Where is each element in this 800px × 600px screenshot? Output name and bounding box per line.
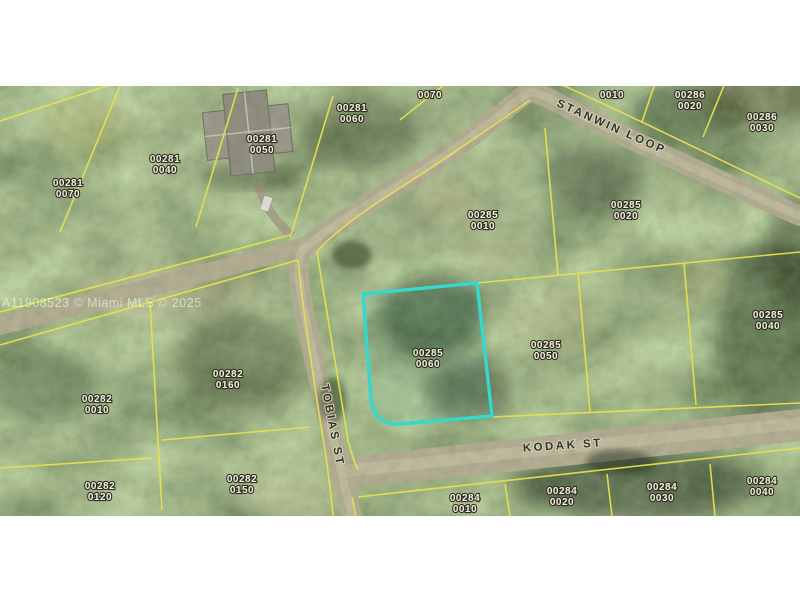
parcel-label: 002840010 [450, 493, 480, 515]
parcel-label: 002850040 [753, 310, 783, 332]
parcel-label: 002860030 [747, 112, 777, 134]
parcel-label: 002820120 [85, 481, 115, 503]
parcel-label: 002840030 [647, 482, 677, 504]
parcel-label: 0010 [600, 90, 624, 101]
parcel-label: 002810060 [337, 103, 367, 125]
parcel-label: 002850020 [611, 200, 641, 222]
mls-watermark: A11908523 © Miami MLS © 2025 [2, 296, 202, 310]
parcel-label: 002860020 [675, 90, 705, 112]
parcel-label-highlighted: 002850060 [413, 348, 443, 370]
parcel-label: 002850050 [531, 340, 561, 362]
parcel-label: 002840040 [747, 476, 777, 498]
parcel-label: 002850010 [468, 210, 498, 232]
parcel-label: 002810070 [53, 178, 83, 200]
parcel-label: 002810050 [247, 134, 277, 156]
mls-listing-photo: 0028100700028100400028100500028100600070… [0, 0, 800, 600]
parcel-label: 002820160 [213, 369, 243, 391]
aerial-parcel-map: 0028100700028100400028100500028100600070… [0, 0, 800, 600]
parcel-label: 002820010 [82, 394, 112, 416]
parcel-label: 002840020 [547, 486, 577, 508]
parcel-label: 0070 [418, 90, 442, 101]
parcel-label: 002820150 [227, 474, 257, 496]
parcel-label: 002810040 [150, 154, 180, 176]
